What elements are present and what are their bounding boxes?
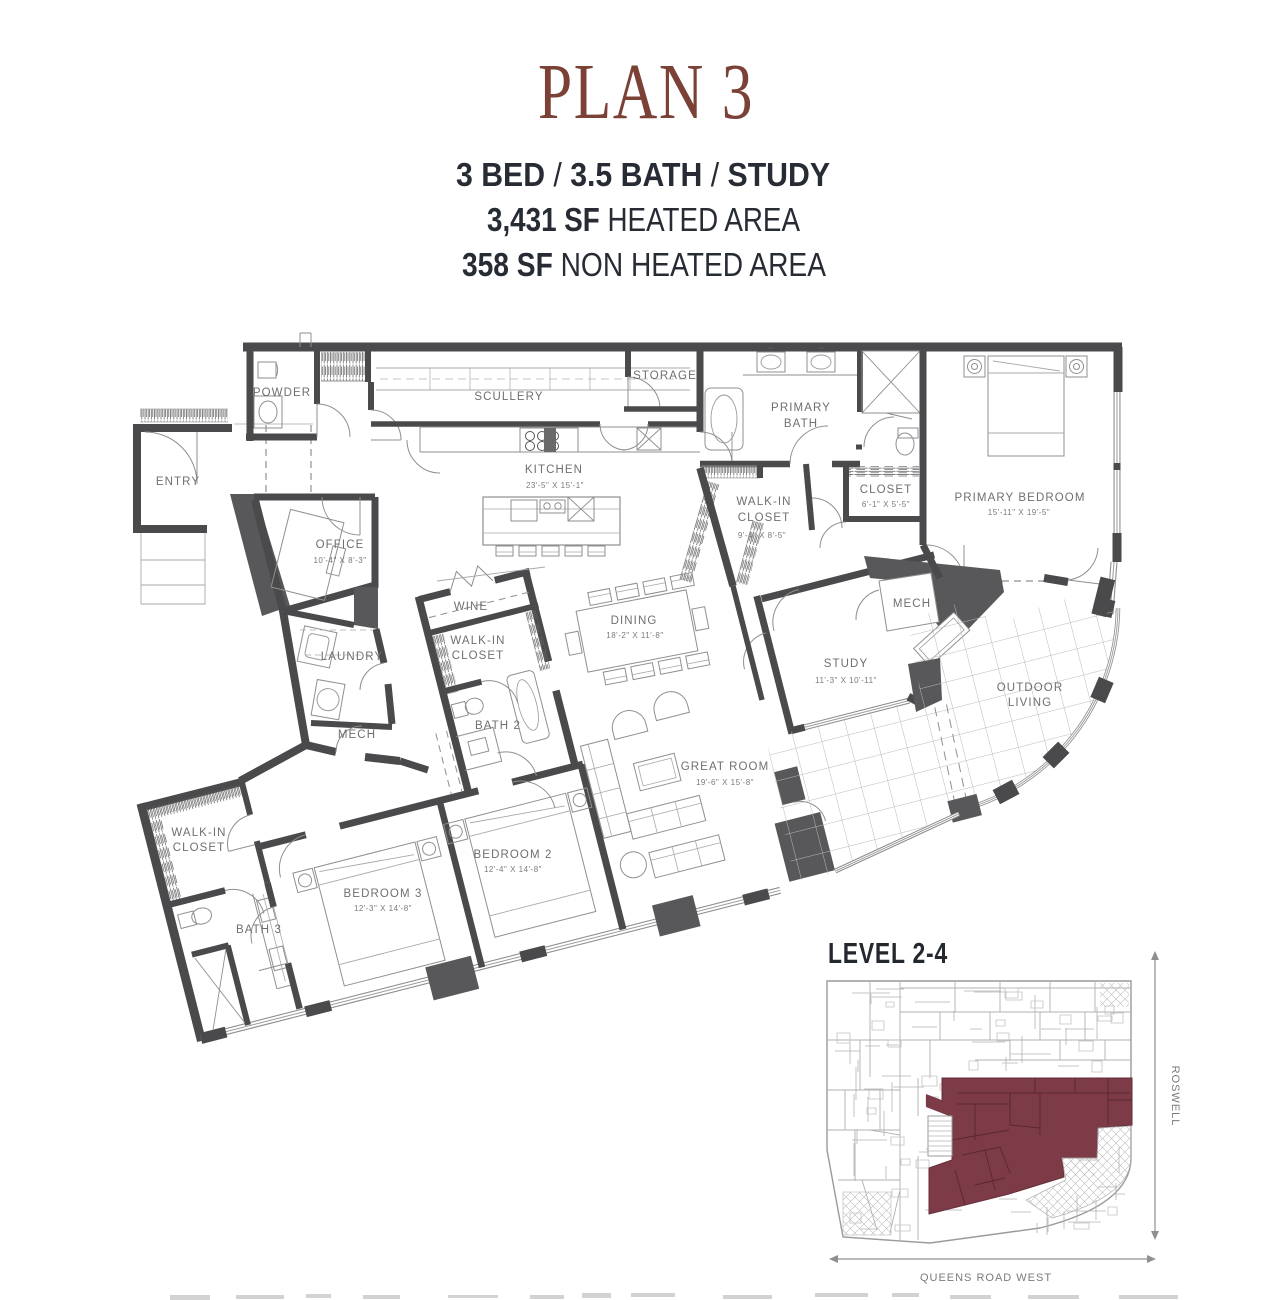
svg-text:WINE: WINE xyxy=(454,601,488,613)
svg-text:12'-3" X 14'-8": 12'-3" X 14'-8" xyxy=(354,904,412,913)
svg-text:BATH: BATH xyxy=(784,418,818,430)
svg-text:CLOSET: CLOSET xyxy=(738,512,791,524)
svg-text:23'-5" X 15'-1": 23'-5" X 15'-1" xyxy=(526,481,584,490)
svg-text:PRIMARY BEDROOM: PRIMARY BEDROOM xyxy=(954,492,1085,504)
svg-text:BEDROOM 2: BEDROOM 2 xyxy=(474,849,553,861)
svg-text:15'-11" X 19'-5": 15'-11" X 19'-5" xyxy=(988,508,1050,517)
svg-text:9'-4" X 8'-5": 9'-4" X 8'-5" xyxy=(738,531,786,540)
svg-text:BATH 3: BATH 3 xyxy=(236,924,282,936)
svg-text:CLOSET: CLOSET xyxy=(860,484,913,496)
svg-text:STUDY: STUDY xyxy=(824,658,868,670)
svg-text:POWDER: POWDER xyxy=(253,387,311,399)
svg-text:6'-1" X 5'-5": 6'-1" X 5'-5" xyxy=(862,500,910,509)
svg-text:BEDROOM 3: BEDROOM 3 xyxy=(344,888,423,900)
svg-text:QUEENS ROAD WEST: QUEENS ROAD WEST xyxy=(920,1272,1052,1284)
svg-text:OUTDOOR: OUTDOOR xyxy=(997,682,1063,694)
svg-text:358 SF NON HEATED AREA: 358 SF NON HEATED AREA xyxy=(462,246,826,283)
svg-text:18'-2" X 11'-8": 18'-2" X 11'-8" xyxy=(606,631,663,640)
svg-text:OFFICE: OFFICE xyxy=(316,539,365,551)
svg-text:PLAN 3: PLAN 3 xyxy=(538,49,754,136)
svg-text:SCULLERY: SCULLERY xyxy=(474,391,543,403)
svg-text:ENTRY: ENTRY xyxy=(156,476,200,488)
svg-text:GREAT ROOM: GREAT ROOM xyxy=(681,761,770,773)
svg-text:12'-4" X 14'-8": 12'-4" X 14'-8" xyxy=(484,865,542,874)
svg-text:LEVEL 2-4: LEVEL 2-4 xyxy=(828,938,948,970)
svg-text:3 BED / 3.5 BATH / STUDY: 3 BED / 3.5 BATH / STUDY xyxy=(456,156,830,193)
svg-text:LAUNDRY: LAUNDRY xyxy=(321,651,383,663)
svg-text:CLOSET: CLOSET xyxy=(173,842,226,854)
svg-text:STORAGE: STORAGE xyxy=(633,370,697,382)
svg-text:MECH: MECH xyxy=(338,729,376,741)
svg-text:BATH 2: BATH 2 xyxy=(475,720,521,732)
svg-text:WALK-IN: WALK-IN xyxy=(171,827,226,839)
svg-text:ROSWELL: ROSWELL xyxy=(1169,1066,1181,1127)
svg-text:LIVING: LIVING xyxy=(1008,697,1052,709)
svg-text:CLOSET: CLOSET xyxy=(452,650,505,662)
svg-text:WALK-IN: WALK-IN xyxy=(450,635,505,647)
svg-text:DINING: DINING xyxy=(611,615,658,627)
svg-text:3,431 SF HEATED AREA: 3,431 SF HEATED AREA xyxy=(487,201,800,238)
svg-text:10'-4" X 8'-3": 10'-4" X 8'-3" xyxy=(313,556,366,565)
svg-text:PRIMARY: PRIMARY xyxy=(771,402,831,414)
svg-text:WALK-IN: WALK-IN xyxy=(736,496,791,508)
svg-text:MECH: MECH xyxy=(893,598,931,610)
svg-text:KITCHEN: KITCHEN xyxy=(525,464,583,476)
svg-text:19'-6" X 15'-8": 19'-6" X 15'-8" xyxy=(696,778,754,787)
svg-text:11'-3" X 10'-11": 11'-3" X 10'-11" xyxy=(815,676,877,685)
